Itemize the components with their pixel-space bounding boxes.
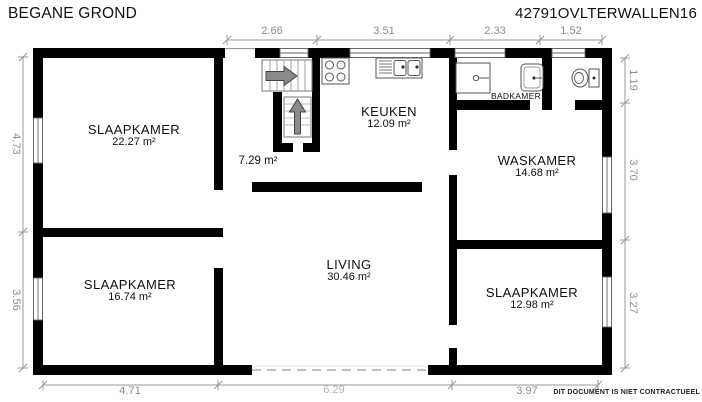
wall-segment [449,175,457,325]
room-label-hal-area: 7.29 m² [239,155,278,167]
dimension-left-1: 4.73 [10,133,22,154]
kitchen-sink-icon [376,58,422,78]
entrance-stairs-icon [262,60,312,91]
dimension-top-4: 1.52 [560,25,581,37]
sliding-door [252,365,428,375]
window [34,118,43,163]
plan-reference: 42791OVLTERWALLEN16 [515,5,697,22]
toilet-icon [572,69,599,87]
room-name: SLAAPKAMER [84,278,176,292]
wall-segment [449,100,530,110]
room-label-waskamer: WASKAMER 14.68 m² [498,154,577,180]
room-label-badkamer: BADKAMER [491,91,541,101]
window [603,157,612,213]
wall-segment [33,228,223,237]
room-name: KEUKEN [361,105,417,119]
room-name: SLAAPKAMER [486,286,578,300]
dimension-left-2: 3.56 [10,289,22,310]
room-area: 16.74 m² [84,292,176,304]
wall-segment [214,268,223,368]
page-title: BEGANE GROND [8,5,137,23]
washbasin-icon [521,64,543,91]
room-area: 12.09 m² [361,119,417,131]
wall-segment [303,143,320,152]
room-label-slaapkamer-bl: SLAAPKAMER 16.74 m² [84,278,176,304]
shower-tray-icon [456,63,490,93]
room-label-living: LIVING 30.46 m² [326,258,371,284]
dimension-top-1: 2.66 [261,25,282,37]
wall-segment [273,143,293,152]
dimension-bottom-2: 6.29 [323,384,344,396]
dimension-right-2: 3.70 [627,159,639,180]
floor-plan-drawing [0,0,702,402]
dimension-top-3: 2.33 [484,25,505,37]
room-label-slaapkamer-br: SLAAPKAMER 12.98 m² [486,286,578,312]
dimension-top-2: 3.51 [373,25,394,37]
wall-segment [33,48,225,58]
room-label-keuken: KEUKEN 12.09 m² [361,105,417,131]
disclaimer-text: DIT DOCUMENT IS NIET CONTRACTUEEL [553,389,700,396]
window [280,49,308,58]
wall-segment [449,348,457,365]
room-name: SLAAPKAMER [88,123,180,137]
window [350,49,430,58]
floor-plan: BEGANE GROND 42791OVLTERWALLEN16 SLAAPKA… [0,0,702,402]
wall-segment [33,48,43,375]
entrance-opening [225,48,255,58]
dimension-bottom-3: 3.97 [516,385,537,397]
room-label-slaapkamer-tl: SLAAPKAMER 22.27 m² [88,123,180,149]
dimension-right-1: 1.19 [627,69,639,90]
window [34,278,43,320]
window [603,277,612,327]
dimension-right-3: 3.27 [627,292,639,313]
wall-segment [214,58,223,190]
wall-segment [252,182,422,192]
dimension-bottom-1: 4.71 [119,385,140,397]
wall-segment [312,48,320,150]
room-area: 22.27 m² [88,137,180,149]
up-stairs-icon [284,97,311,137]
room-name: WASKAMER [498,154,577,168]
room-area: 14.68 m² [498,168,577,180]
room-name: LIVING [326,258,371,272]
window [552,49,585,58]
wall-segment [575,100,612,110]
room-area: 30.46 m² [326,272,371,284]
stove-icon [322,58,349,84]
wall-segment [457,240,602,249]
window [455,49,505,58]
room-area: 12.98 m² [486,300,578,312]
